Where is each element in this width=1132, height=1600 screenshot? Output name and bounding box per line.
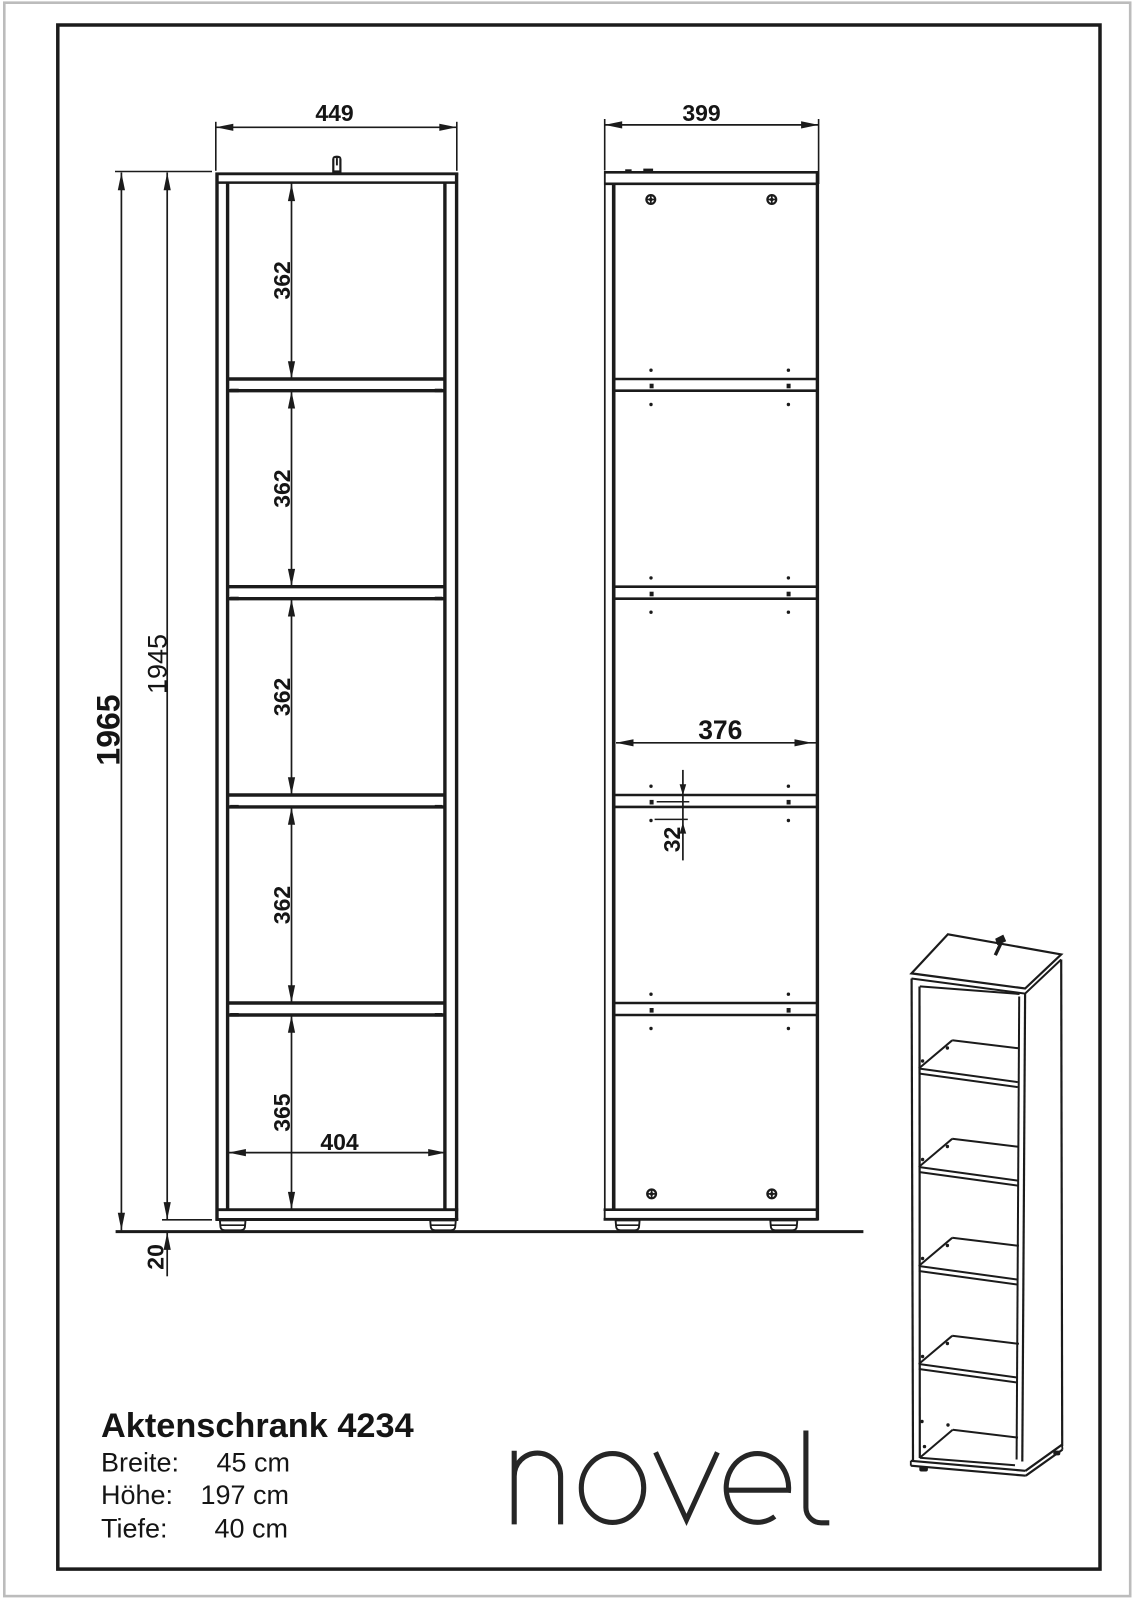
svg-text:362: 362 <box>269 469 295 507</box>
svg-text:197 cm: 197 cm <box>201 1480 290 1510</box>
svg-text:362: 362 <box>269 261 295 299</box>
svg-text:399: 399 <box>682 100 720 126</box>
svg-text:365: 365 <box>269 1093 295 1132</box>
svg-text:362: 362 <box>269 678 295 716</box>
svg-text:362: 362 <box>269 886 295 924</box>
svg-text:Breite:: Breite: <box>101 1448 179 1478</box>
svg-text:1965: 1965 <box>90 694 126 765</box>
svg-text:376: 376 <box>698 715 742 745</box>
svg-text:1945: 1945 <box>142 634 172 694</box>
svg-text:404: 404 <box>320 1129 359 1155</box>
svg-text:Tiefe:: Tiefe: <box>101 1514 168 1544</box>
svg-text:449: 449 <box>315 100 353 126</box>
svg-text:Höhe:: Höhe: <box>101 1480 173 1510</box>
svg-text:45 cm: 45 cm <box>217 1448 291 1478</box>
svg-text:40 cm: 40 cm <box>215 1514 289 1544</box>
svg-text:32: 32 <box>659 827 685 853</box>
svg-text:20: 20 <box>143 1244 169 1270</box>
svg-text:Aktenschrank 4234: Aktenschrank 4234 <box>101 1407 414 1445</box>
